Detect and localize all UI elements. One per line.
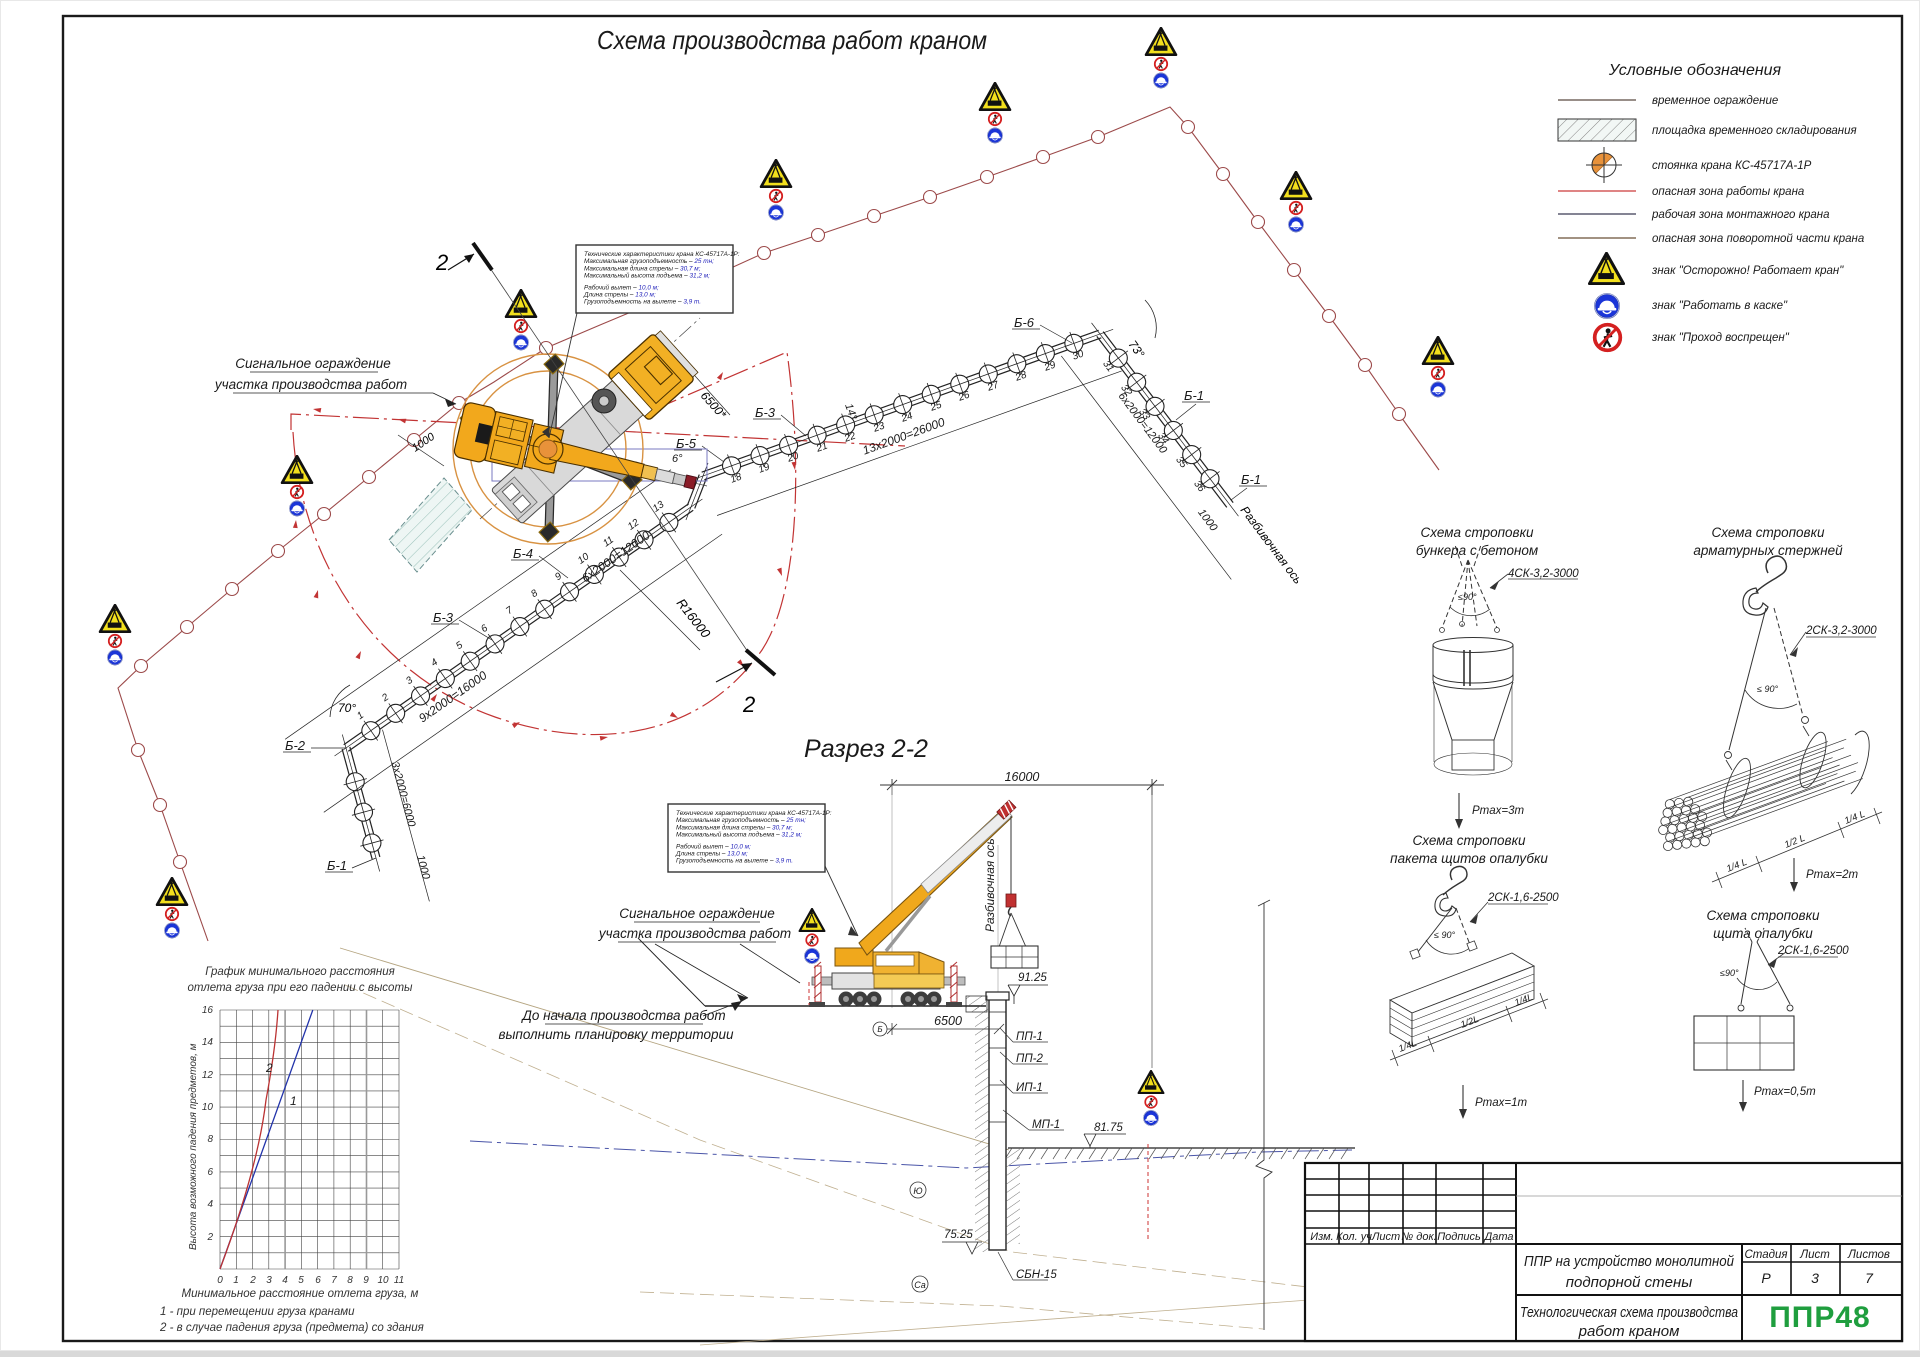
svg-text:2: 2 <box>435 250 448 275</box>
svg-text:ППР48: ППР48 <box>1769 1301 1871 1334</box>
svg-text:Схема строповки: Схема строповки <box>1413 833 1526 848</box>
svg-text:16: 16 <box>202 1005 214 1016</box>
svg-text:Б-1: Б-1 <box>1241 472 1261 487</box>
svg-text:отлета груза при его падении с: отлета груза при его падении с высоты <box>188 982 414 994</box>
svg-text:8: 8 <box>207 1134 213 1145</box>
svg-text:знак "Осторожно! Работает кран: знак "Осторожно! Работает кран" <box>1651 265 1844 277</box>
svg-text:5: 5 <box>298 1275 304 1286</box>
svg-text:Грузоподъемность на вылете – 3: Грузоподъемность на вылете – 3,9 т. <box>584 298 701 306</box>
svg-text:знак "Работать в каске": знак "Работать в каске" <box>1651 300 1788 312</box>
svg-text:14: 14 <box>202 1037 214 1048</box>
svg-text:Технологическая схема производ: Технологическая схема производства <box>1520 1305 1738 1321</box>
svg-text:Рабочий вылет – 10,0 м;: Рабочий вылет – 10,0 м; <box>676 842 751 850</box>
svg-text:2: 2 <box>249 1275 256 1286</box>
svg-text:ПП-2: ПП-2 <box>1016 1053 1043 1065</box>
svg-text:ИП-1: ИП-1 <box>1016 1082 1043 1094</box>
svg-text:площадка временного складирова: площадка временного складирования <box>1652 125 1857 137</box>
svg-text:Лист: Лист <box>1799 1249 1830 1261</box>
svg-text:щита опалубки: щита опалубки <box>1713 926 1813 941</box>
svg-text:Листов: Листов <box>1847 1249 1890 1261</box>
svg-text:Разрез 2-2: Разрез 2-2 <box>804 735 928 763</box>
svg-text:≤ 90°: ≤ 90° <box>1434 930 1455 940</box>
svg-text:Б-6: Б-6 <box>1014 315 1035 330</box>
svg-text:1 - при перемещении груза кран: 1 - при перемещении груза кранами <box>160 1306 355 1318</box>
svg-text:рабочая зона монтажного крана: рабочая зона монтажного крана <box>1651 209 1830 221</box>
svg-text:Максимальная грузоподъемность: Максимальная грузоподъемность – 25 тн; <box>676 816 806 824</box>
svg-text:ППР на устройство монолитной: ППР на устройство монолитной <box>1524 1254 1734 1270</box>
svg-text:Схема строповки: Схема строповки <box>1421 525 1534 540</box>
svg-text:стоянка крана КС-45717А-1Р: стоянка крана КС-45717А-1Р <box>1652 160 1812 172</box>
svg-text:8: 8 <box>347 1275 353 1286</box>
svg-text:≤90°: ≤90° <box>1458 592 1477 602</box>
svg-text:Сигнальное ограждение: Сигнальное ограждение <box>619 906 775 921</box>
svg-text:Pmax=1m: Pmax=1m <box>1475 1097 1528 1109</box>
svg-text:Схема строповки: Схема строповки <box>1712 525 1825 540</box>
svg-text:Длина стрелы – 13,0 м;: Длина стрелы – 13,0 м; <box>675 851 748 858</box>
svg-text:2: 2 <box>742 692 755 717</box>
svg-text:Р: Р <box>1761 1270 1771 1286</box>
svg-text:До начала производства работ: До начала производства работ <box>520 1008 725 1023</box>
svg-text:Б-4: Б-4 <box>513 546 533 561</box>
svg-text:работ краном: работ краном <box>1578 1323 1680 1340</box>
svg-text:Б-1: Б-1 <box>1184 388 1204 403</box>
svg-text:Сигнальное ограждение: Сигнальное ограждение <box>235 356 391 371</box>
svg-text:Максимальная длина стрелы – 30: Максимальная длина стрелы – 30,7 м; <box>676 823 793 831</box>
svg-text:6°: 6° <box>672 453 683 465</box>
svg-text:7: 7 <box>331 1275 337 1286</box>
svg-text:Максимальный высота подъема –: Максимальный высота подъема – 31,2 м; <box>584 272 710 280</box>
svg-text:10: 10 <box>377 1275 389 1286</box>
svg-text:Б-3: Б-3 <box>433 610 454 625</box>
svg-text:6500: 6500 <box>934 1014 962 1028</box>
svg-text:Схема производства работ крано: Схема производства работ краном <box>597 25 987 55</box>
svg-text:Рабочий вылет – 10,0 м;: Рабочий вылет – 10,0 м; <box>584 283 659 291</box>
svg-text:3: 3 <box>1811 1270 1819 1286</box>
svg-text:выполнить планировку территори: выполнить планировку территории <box>498 1027 734 1042</box>
svg-text:2 - в случае падения груза (пр: 2 - в случае падения груза (предмета) со… <box>159 1322 424 1334</box>
svg-text:Максимальная длина стрелы – 30: Максимальная длина стрелы – 30,7 м; <box>584 264 701 272</box>
svg-text:16000: 16000 <box>1005 770 1040 784</box>
svg-text:Лист: Лист <box>1371 1231 1400 1243</box>
svg-text:≤90°: ≤90° <box>1720 968 1739 978</box>
svg-text:4СК-3,2-3000: 4СК-3,2-3000 <box>1508 568 1579 580</box>
svg-text:2: 2 <box>265 1061 273 1075</box>
svg-text:Б-3: Б-3 <box>755 405 776 420</box>
svg-text:Pmax=0,5m: Pmax=0,5m <box>1754 1086 1816 1098</box>
svg-text:6: 6 <box>207 1167 213 1178</box>
svg-text:Технические характеристики кра: Технические характеристики крана КС-4571… <box>676 810 832 817</box>
svg-text:Длина стрелы – 13,0 м;: Длина стрелы – 13,0 м; <box>583 292 656 299</box>
svg-text:Дата: Дата <box>1482 1231 1513 1243</box>
svg-text:Минимальное расстояние отлета: Минимальное расстояние отлета груза, м <box>182 1288 419 1300</box>
svg-text:участка производства работ: участка производства работ <box>214 377 407 392</box>
svg-text:Технические характеристики кра: Технические характеристики крана КС-4571… <box>584 251 740 258</box>
svg-text:пакета щитов опалубки: пакета щитов опалубки <box>1390 851 1548 866</box>
svg-text:9: 9 <box>363 1275 369 1286</box>
svg-text:Подпись: Подпись <box>1437 1231 1481 1243</box>
svg-text:опасная зона работы крана: опасная зона работы крана <box>1652 186 1804 198</box>
svg-text:МП-1: МП-1 <box>1032 1119 1060 1131</box>
svg-text:Стадия: Стадия <box>1744 1249 1787 1261</box>
svg-text:Б: Б <box>877 1025 882 1034</box>
svg-text:временное ограждение: временное ограждение <box>1652 95 1778 107</box>
svg-text:СБН-15: СБН-15 <box>1016 1269 1057 1281</box>
svg-text:арматурных стержней: арматурных стержней <box>1693 543 1843 558</box>
svg-text:1: 1 <box>233 1275 239 1286</box>
svg-text:3: 3 <box>266 1275 272 1286</box>
svg-text:опасная зона поворотной части: опасная зона поворотной части крана <box>1652 233 1864 245</box>
svg-text:4: 4 <box>282 1275 288 1286</box>
svg-text:2СК-1,6-2500: 2СК-1,6-2500 <box>1487 892 1559 904</box>
svg-text:Грузоподъемность на вылете – 3: Грузоподъемность на вылете – 3,9 т. <box>676 857 793 865</box>
svg-text:91.25: 91.25 <box>1018 972 1047 984</box>
svg-text:Максимальная грузоподъемность: Максимальная грузоподъемность – 25 тн; <box>584 257 714 265</box>
svg-text:≤ 90°: ≤ 90° <box>1757 684 1778 694</box>
svg-text:Изм.: Изм. <box>1310 1231 1333 1243</box>
svg-text:Са: Са <box>914 1280 926 1290</box>
svg-text:ПП-1: ПП-1 <box>1016 1031 1043 1043</box>
svg-text:11: 11 <box>394 1275 404 1286</box>
svg-text:Ю: Ю <box>913 1186 922 1196</box>
svg-text:0: 0 <box>217 1275 223 1286</box>
svg-text:Максимальный высота подъема –: Максимальный высота подъема – 31,2 м; <box>676 831 802 839</box>
svg-text:6: 6 <box>315 1275 321 1286</box>
svg-text:Разбивочная ось: Разбивочная ось <box>983 838 997 932</box>
svg-text:№ док.: № док. <box>1401 1231 1436 1243</box>
svg-text:знак "Проход воспрещен": знак "Проход воспрещен" <box>1651 332 1790 344</box>
svg-text:70°: 70° <box>338 701 356 715</box>
svg-text:подпорной стены: подпорной стены <box>1566 1274 1693 1291</box>
svg-text:Условные обозначения: Условные обозначения <box>1608 62 1782 79</box>
svg-text:81.75: 81.75 <box>1094 1122 1123 1134</box>
svg-text:2: 2 <box>206 1232 213 1243</box>
svg-text:Б-2: Б-2 <box>285 738 306 753</box>
svg-text:Высота возможного падения пред: Высота возможного падения предметов, м <box>188 1043 199 1250</box>
svg-text:10: 10 <box>202 1102 214 1113</box>
svg-text:2СК-3,2-3000: 2СК-3,2-3000 <box>1805 625 1877 637</box>
svg-text:4: 4 <box>207 1199 213 1210</box>
svg-text:Кол. уч: Кол. уч <box>1336 1231 1372 1243</box>
svg-text:Pmax=3m: Pmax=3m <box>1472 805 1525 817</box>
svg-text:Схема строповки: Схема строповки <box>1707 908 1820 923</box>
svg-text:1: 1 <box>290 1094 297 1108</box>
svg-text:2СК-1,6-2500: 2СК-1,6-2500 <box>1777 945 1849 957</box>
svg-text:12: 12 <box>202 1070 214 1081</box>
svg-text:75.25: 75.25 <box>944 1229 973 1241</box>
svg-text:Pmax=2m: Pmax=2m <box>1806 869 1859 881</box>
svg-text:График минимального расстояния: График минимального расстояния <box>205 966 395 978</box>
svg-text:участка производства работ: участка производства работ <box>598 926 791 941</box>
svg-text:Б-1: Б-1 <box>327 858 347 873</box>
svg-text:7: 7 <box>1865 1270 1874 1286</box>
